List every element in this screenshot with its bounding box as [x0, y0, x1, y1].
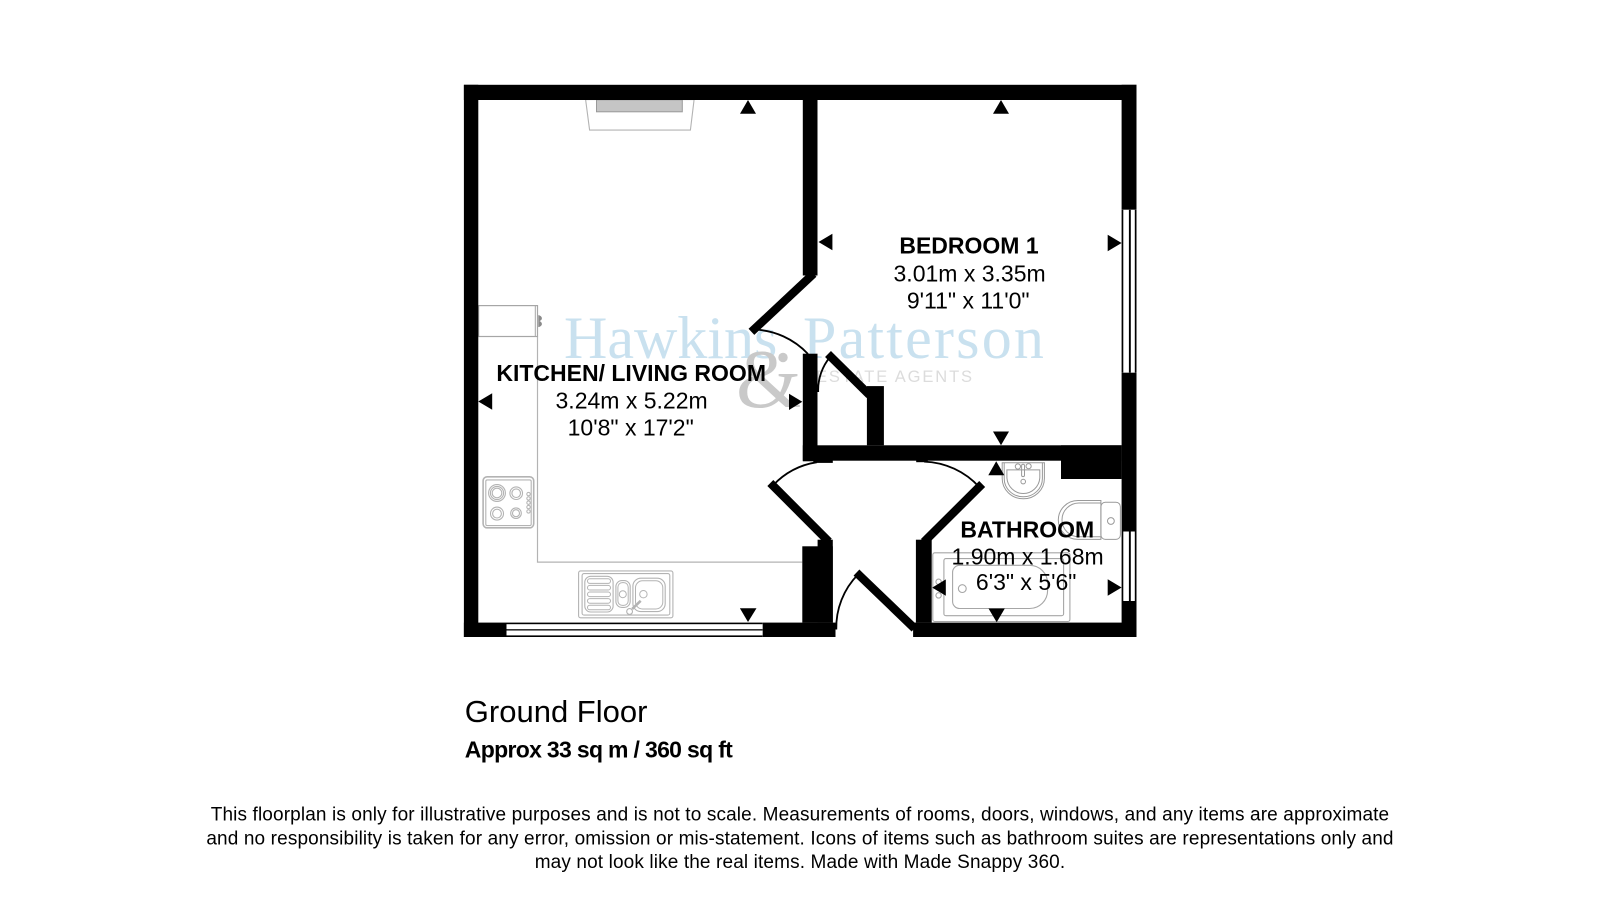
- svg-text:BEDROOM 1: BEDROOM 1: [899, 233, 1039, 259]
- svg-text:10'8" x 17'2": 10'8" x 17'2": [568, 415, 694, 441]
- svg-text:may not look like the real ite: may not look like the real items. Made w…: [535, 852, 1066, 873]
- svg-text:1.90m x 1.68m: 1.90m x 1.68m: [952, 544, 1104, 570]
- svg-text:9'11" x 11'0": 9'11" x 11'0": [907, 288, 1030, 314]
- svg-text:This floorplan is only for ill: This floorplan is only for illustrative …: [211, 805, 1390, 826]
- svg-text:Approx 33 sq m / 360 sq ft: Approx 33 sq m / 360 sq ft: [465, 737, 733, 763]
- svg-text:6'3" x 5'6": 6'3" x 5'6": [976, 569, 1077, 595]
- svg-text:KITCHEN/ LIVING ROOM: KITCHEN/ LIVING ROOM: [496, 360, 766, 386]
- svg-text:BATHROOM: BATHROOM: [960, 517, 1094, 543]
- svg-text:Ground Floor: Ground Floor: [465, 694, 648, 729]
- svg-text:3.01m x 3.35m: 3.01m x 3.35m: [894, 261, 1046, 287]
- svg-text:3.24m x 5.22m: 3.24m x 5.22m: [556, 388, 708, 414]
- svg-text:and no responsibility is taken: and no responsibility is taken for any e…: [206, 828, 1393, 849]
